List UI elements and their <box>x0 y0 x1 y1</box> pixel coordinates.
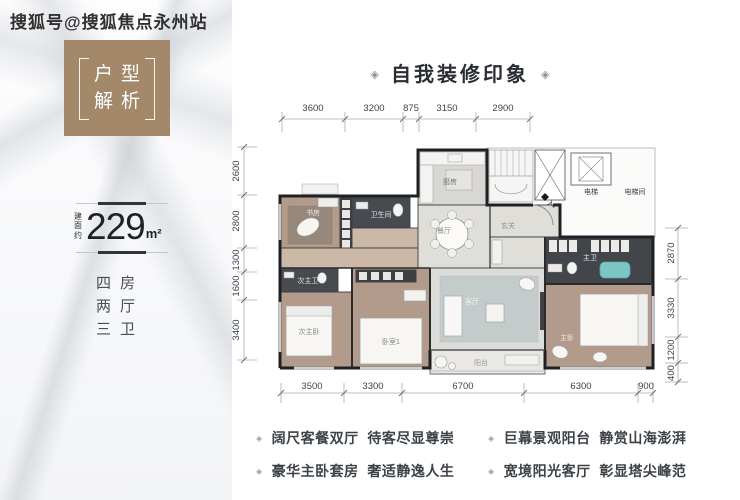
feature-bullet-icon: ◈ <box>256 434 263 443</box>
room-label-master-bed: 主卧 <box>560 333 574 342</box>
feature-text-4: 宽境阳光客厅 彰显塔尖峰范 <box>504 463 687 479</box>
room-label-living: 客厅 <box>465 297 479 306</box>
feature-text-2: 巨幕景观阳台 静赏山海澎湃 <box>504 430 687 446</box>
corridor <box>280 248 430 268</box>
feature-text-1: 阔尺客餐双厅 待客尽显尊崇 <box>272 430 455 446</box>
diamond-ornament-right: ◈ <box>541 69 549 81</box>
divider-bottom <box>76 252 168 253</box>
floor-plan: 电梯 电梯间 <box>225 95 720 420</box>
ac-platform <box>302 184 338 194</box>
diamond-ornament-left: ◈ <box>371 69 379 81</box>
feature-text-3: 豪华主卧套房 奢适静逸人生 <box>272 463 455 479</box>
area-figure: 建面约 229 m² <box>74 209 162 244</box>
layout-line-baths: 三卫 <box>96 318 144 341</box>
dim-left-4: 1600 <box>231 275 242 296</box>
dim-top-5: 2900 <box>492 103 513 114</box>
tag-line-2: 解析 <box>68 88 174 115</box>
tag-line-1: 户型 <box>68 61 174 88</box>
dims-left: 2600 2800 1300 1600 3400 <box>231 144 257 363</box>
dim-right-2: 3330 <box>666 297 677 318</box>
dim-left-5: 3400 <box>231 319 242 340</box>
area-unit: m² <box>146 226 162 241</box>
room-label-balcony: 阳台 <box>474 358 488 367</box>
feature-list: ◈阔尺客餐双厅 待客尽显尊崇 ◈巨幕景观阳台 静赏山海澎湃 ◈豪华主卧套房 奢适… <box>256 428 696 481</box>
feature-bullet-icon: ◈ <box>488 467 495 476</box>
watermark: 搜狐号@搜狐焦点永州站 <box>10 8 208 33</box>
dim-top-2: 3200 <box>363 103 384 114</box>
layout-summary: 四房 两厅 三卫 <box>96 272 144 341</box>
room-label-elevator: 电梯 <box>584 187 598 196</box>
dim-top-4: 3150 <box>436 103 457 114</box>
dim-bottom-5: 900 <box>638 381 654 392</box>
dim-bottom-1: 3500 <box>301 381 322 392</box>
feature-bullet-icon: ◈ <box>488 434 495 443</box>
hall <box>352 228 420 248</box>
feature-item-3: ◈豪华主卧套房 奢适静逸人生 <box>256 461 464 481</box>
area-prefix: 建面约 <box>74 212 84 241</box>
dim-top-3: 875 <box>403 103 419 114</box>
dim-right-1: 2870 <box>666 242 677 263</box>
dim-left-2: 2800 <box>231 210 242 231</box>
bathtub <box>600 262 630 278</box>
page-title-text: 自我装修印象 <box>391 64 529 86</box>
room-label-jr-bath: 次主卫 <box>298 276 319 285</box>
room-label-dining: 餐厅 <box>437 226 451 235</box>
page-title: ◈自我装修印象◈ <box>230 58 690 87</box>
layout-line-rooms: 四房 <box>96 272 144 295</box>
dim-left-3: 1300 <box>231 249 242 270</box>
room-label-foyer: 玄关 <box>501 221 515 230</box>
divider-top <box>76 203 168 204</box>
area-value: 229 <box>86 209 145 244</box>
dims-top: 3600 3200 875 3150 2900 <box>279 103 533 132</box>
dims-bottom: 3500 3300 6700 6300 900 <box>278 381 656 403</box>
room-label-kitchen: 厨房 <box>443 177 457 186</box>
dim-bottom-2: 3300 <box>362 381 383 392</box>
dim-right-4: 400 <box>666 365 677 381</box>
room-label-jr-bed: 次主卧 <box>299 327 320 336</box>
layout-line-halls: 两厅 <box>96 295 144 318</box>
dim-bottom-3: 6700 <box>452 381 473 392</box>
tag-box: 户型 解析 <box>64 40 170 136</box>
feature-bullet-icon: ◈ <box>256 467 263 476</box>
tag-text: 户型 解析 <box>64 61 170 115</box>
dim-right-3: 1200 <box>666 339 677 360</box>
room-label-study: 书房 <box>306 208 320 217</box>
dim-bottom-4: 6300 <box>570 381 591 392</box>
room-label-bedroom1: 卧室1 <box>382 337 400 346</box>
dim-top-1: 3600 <box>302 103 323 114</box>
dims-right: 2870 3330 1200 400 <box>665 225 688 385</box>
foyer-upper <box>490 205 560 237</box>
room-label-elevator-hall: 电梯间 <box>625 187 646 196</box>
dim-left-1: 2600 <box>231 160 242 181</box>
feature-item-2: ◈巨幕景观阳台 静赏山海澎湃 <box>488 428 696 448</box>
room-label-master-bath: 主卫 <box>583 253 597 262</box>
feature-item-1: ◈阔尺客餐双厅 待客尽显尊崇 <box>256 428 464 448</box>
room-label-bath: 卫生间 <box>371 210 392 219</box>
feature-item-4: ◈宽境阳光客厅 彰显塔尖峰范 <box>488 461 696 481</box>
